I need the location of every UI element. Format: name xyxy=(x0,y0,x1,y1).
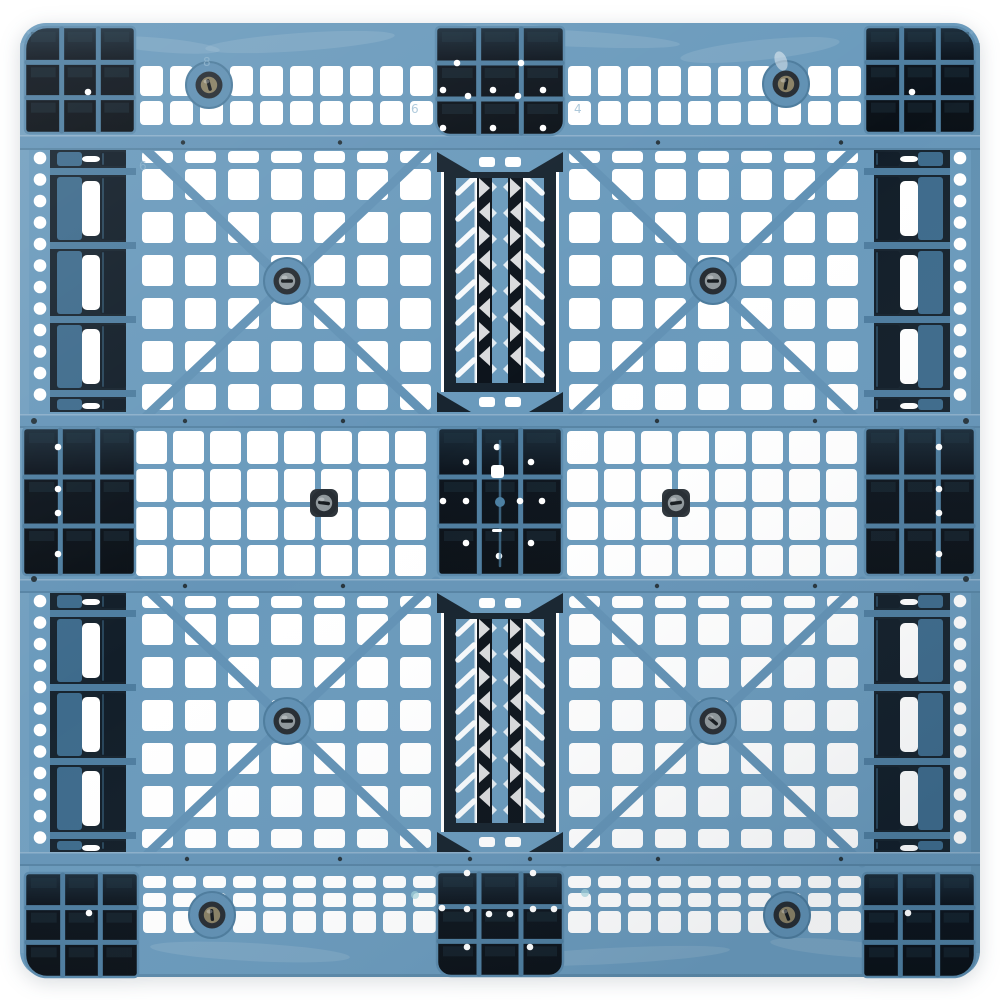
product-photo-blue-plastic-pallet: 8646 xyxy=(0,0,1000,1000)
pallet-top-view: 8646 xyxy=(0,0,1000,1000)
lighting-sheen xyxy=(20,23,980,977)
